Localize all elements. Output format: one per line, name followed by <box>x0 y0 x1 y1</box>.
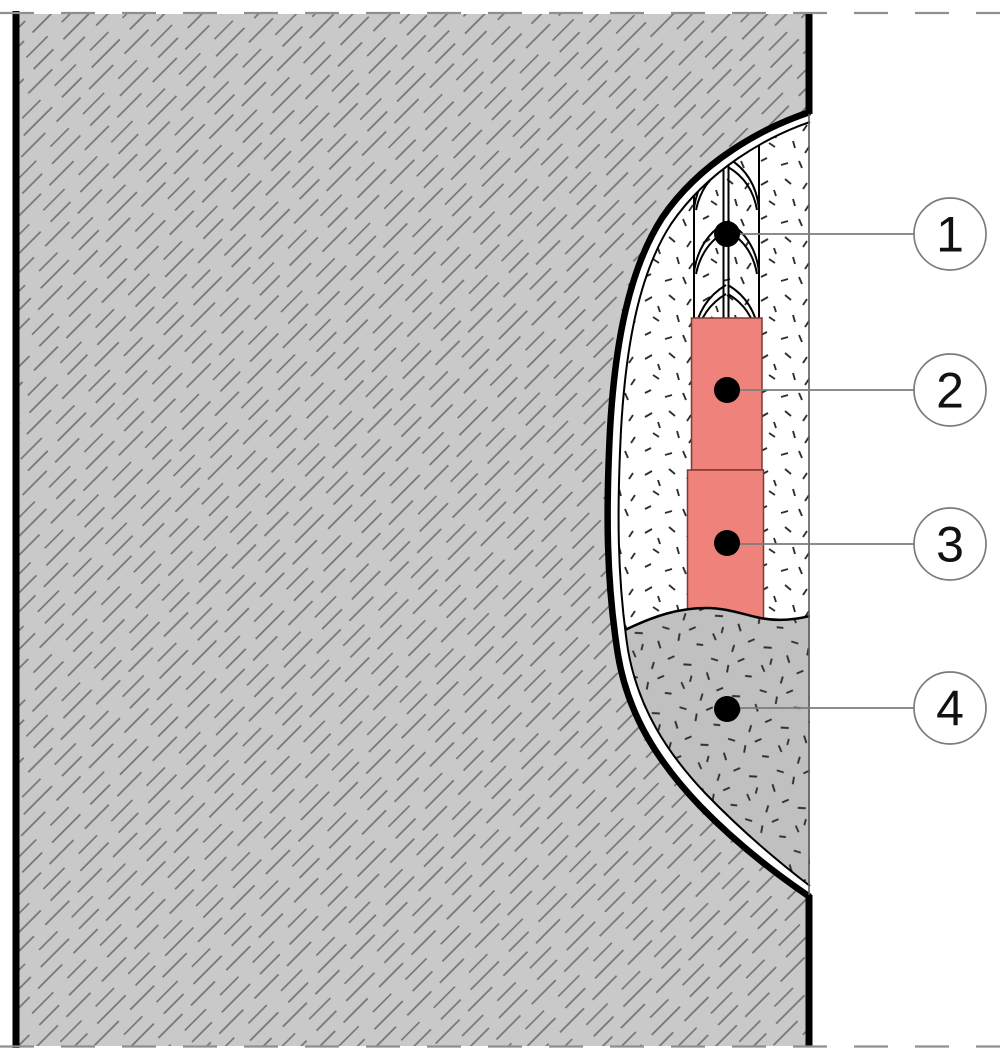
callout-number-3: 3 <box>936 517 964 573</box>
callout-3: 3 <box>914 508 986 580</box>
anchor-dot-3 <box>714 530 740 556</box>
anchor-dot-1 <box>714 221 740 247</box>
callout-2: 2 <box>914 354 986 426</box>
callout-number-2: 2 <box>936 363 964 419</box>
drawing-canvas: 1 2 3 4 <box>0 0 1000 1061</box>
anchor-dot-4 <box>714 696 740 722</box>
callout-number-1: 1 <box>936 207 964 263</box>
callout-number-4: 4 <box>936 681 964 737</box>
callout-1: 1 <box>914 198 986 270</box>
callouts: 1 2 3 4 <box>914 198 986 744</box>
technical-drawing: 1 2 3 4 <box>0 0 1000 1061</box>
callout-4: 4 <box>914 672 986 744</box>
anchor-dot-2 <box>714 377 740 403</box>
